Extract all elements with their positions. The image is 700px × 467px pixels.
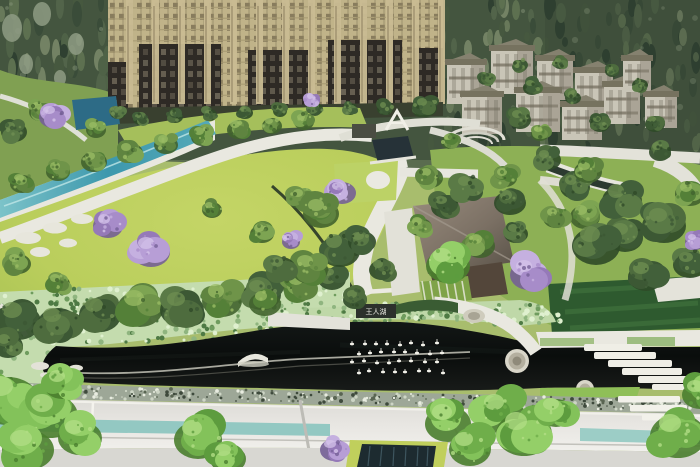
svg-text:王人湖: 王人湖 <box>366 307 387 316</box>
